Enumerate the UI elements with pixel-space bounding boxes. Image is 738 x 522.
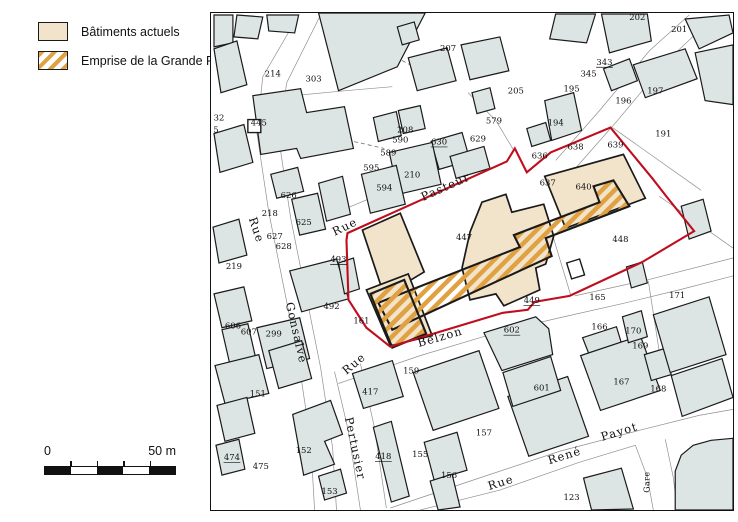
parcel-number: 194 xyxy=(548,118,564,128)
parcel-number: 208 xyxy=(397,125,413,135)
parcel-number: 606 xyxy=(225,321,241,331)
building xyxy=(695,45,733,105)
parcel-number: 492 xyxy=(323,301,339,311)
parcel-number: 628 xyxy=(276,241,292,251)
parcel-number: 589 xyxy=(380,147,396,157)
building xyxy=(675,438,733,510)
building xyxy=(461,37,509,80)
parcel-number: 156 xyxy=(441,470,457,480)
building xyxy=(319,176,351,221)
parcel-number: 579 xyxy=(486,116,502,126)
parcel-line xyxy=(575,258,733,296)
parcel-number: 167 xyxy=(613,377,629,387)
parcel-number: 197 xyxy=(647,86,663,96)
parcel-number: 196 xyxy=(615,96,631,106)
street-name: Rue xyxy=(246,215,267,244)
building xyxy=(253,89,354,159)
building xyxy=(217,397,255,441)
scale-bar-tick xyxy=(97,461,99,466)
parcel-number: 151 xyxy=(250,388,266,398)
parcel-number: 214 xyxy=(265,69,281,79)
parcel-number: 637 xyxy=(540,177,556,187)
parcel-number: 171 xyxy=(669,290,685,300)
street-name: Gare xyxy=(642,472,651,493)
building xyxy=(352,361,403,409)
building xyxy=(213,219,247,263)
parcel-number: 155 xyxy=(412,449,428,459)
scale-bar-ticks xyxy=(44,461,176,466)
parcel-number: 636 xyxy=(532,150,548,160)
scale-bar-tick xyxy=(150,461,152,466)
legend-swatch-emprise xyxy=(38,51,68,70)
parcel-number: 5 xyxy=(213,125,218,135)
map-figure: Bâtiments actuels Emprise de la Grande F… xyxy=(0,0,738,522)
legend-swatch-batiments-actuels xyxy=(38,22,68,41)
parcel-number: 32 xyxy=(214,113,225,123)
parcel-number: 161 xyxy=(353,316,369,326)
parcel-number: 343 xyxy=(596,57,612,67)
map-frame: 2143034453252072055796296302085905895952… xyxy=(210,12,734,511)
parcel-number: 601 xyxy=(534,382,550,392)
parcel-number: 594 xyxy=(376,182,392,192)
parcel-number: 625 xyxy=(296,217,312,227)
cadastral-map: 2143034453252072055796296302085905895952… xyxy=(211,13,733,510)
parcel-number: 152 xyxy=(296,445,312,455)
parcel-number: 607 xyxy=(241,327,257,337)
parcel-number: 219 xyxy=(226,261,242,271)
parcel-number: 201 xyxy=(671,24,687,34)
parcel-number: 205 xyxy=(508,86,524,96)
building xyxy=(214,41,247,93)
parcel-number: 626 xyxy=(281,190,297,200)
building xyxy=(408,48,456,91)
parcel-line xyxy=(574,25,705,170)
building xyxy=(685,15,733,49)
parcel-number: 303 xyxy=(306,74,322,84)
parcel-number: 153 xyxy=(321,486,337,496)
legend-label-batiments-actuels: Bâtiments actuels xyxy=(81,25,180,39)
parcel-number: 638 xyxy=(568,141,584,151)
scale-bar-segment xyxy=(123,467,149,474)
building xyxy=(550,14,596,43)
parcel-number: 123 xyxy=(564,492,580,502)
parcel-number: 210 xyxy=(404,169,420,179)
scale-bar: 0 50 m xyxy=(44,444,176,475)
parcel-number: 170 xyxy=(625,326,641,336)
parcel-number: 168 xyxy=(650,383,666,393)
parcel-number: 474 xyxy=(224,452,240,462)
parcel-number: 417 xyxy=(362,386,378,396)
parcel-number: 475 xyxy=(253,461,269,471)
parcel-number: 640 xyxy=(576,181,592,191)
parcel-number: 629 xyxy=(470,133,486,143)
scale-bar-segment xyxy=(71,467,97,474)
scale-bar-segment xyxy=(97,467,123,474)
parcel-number: 602 xyxy=(504,325,520,335)
street-name: Payot xyxy=(599,419,639,443)
parcel-number: 218 xyxy=(262,208,278,218)
parcel-number: 191 xyxy=(655,129,671,139)
building xyxy=(293,400,343,475)
scale-bar-labels: 0 50 m xyxy=(44,444,176,458)
parcel-number: 299 xyxy=(266,329,282,339)
scale-bar-tick xyxy=(123,461,125,466)
scale-bar-zero-label: 0 xyxy=(44,444,51,458)
parcel-number: 166 xyxy=(591,322,607,332)
parcel-number: 448 xyxy=(612,234,628,244)
parcel-number: 195 xyxy=(564,84,580,94)
building xyxy=(214,125,253,173)
parcel-number: 157 xyxy=(476,427,492,437)
parcel-number: 169 xyxy=(632,341,648,351)
scale-bar-tick xyxy=(70,461,72,466)
parcel-number: 345 xyxy=(580,69,596,79)
building xyxy=(214,15,233,47)
parcel-number: 447 xyxy=(456,232,472,242)
parcel-number: 202 xyxy=(629,13,645,22)
building xyxy=(413,351,499,431)
scale-bar-segments xyxy=(44,466,176,475)
parcel-number: 418 xyxy=(375,451,391,461)
parcel-number: 590 xyxy=(392,134,408,144)
building-outline xyxy=(567,259,585,279)
building xyxy=(472,88,495,114)
parcel-number: 639 xyxy=(607,139,623,149)
parcel-number: 165 xyxy=(589,292,605,302)
building xyxy=(267,15,299,33)
building xyxy=(584,468,634,510)
scale-bar-segment xyxy=(45,467,71,474)
parcel-number: 449 xyxy=(524,295,540,305)
building xyxy=(234,15,263,39)
street-name: Pertusier xyxy=(342,416,369,481)
parcel-number: 627 xyxy=(267,231,283,241)
parcel-number: 630 xyxy=(431,136,447,146)
parcel-number: 445 xyxy=(251,118,267,128)
parcel-number: 159 xyxy=(403,366,419,376)
scale-bar-segment xyxy=(149,467,175,474)
building xyxy=(633,49,697,98)
parcel-number: 595 xyxy=(363,162,379,172)
parcel-number: 207 xyxy=(440,43,456,53)
parcel-number: 493 xyxy=(330,254,346,264)
scale-bar-50m-label: 50 m xyxy=(148,444,176,458)
